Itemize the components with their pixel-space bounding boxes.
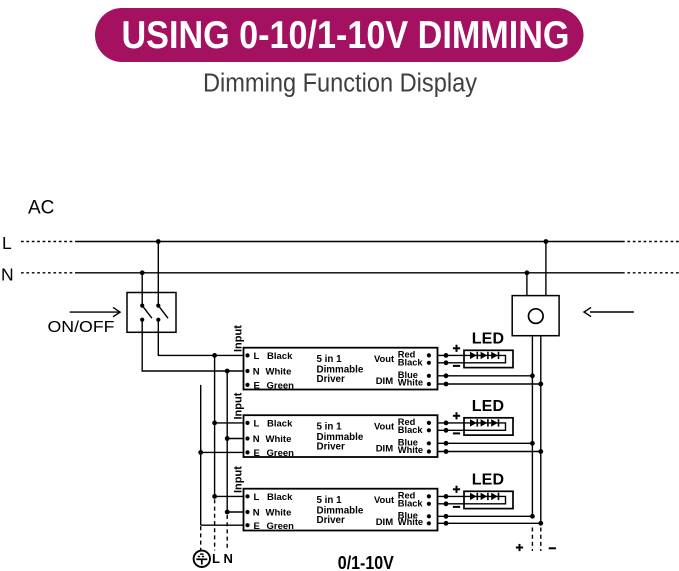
svg-text:Input: Input (233, 392, 245, 419)
svg-text:N: N (253, 434, 260, 445)
svg-text:L: L (2, 233, 12, 253)
svg-text:0/1-10V: 0/1-10V (338, 553, 394, 571)
svg-text:DIM: DIM (376, 444, 394, 455)
svg-text:L: L (212, 551, 220, 566)
svg-text:L: L (254, 419, 260, 430)
svg-text:Black: Black (267, 419, 293, 430)
svg-text:N: N (253, 508, 260, 519)
svg-text:E: E (254, 521, 260, 532)
svg-text:L: L (254, 492, 260, 503)
svg-text:Vout: Vout (374, 353, 394, 364)
svg-text:DIM: DIM (376, 376, 394, 387)
svg-text:LED: LED (472, 472, 505, 489)
svg-text:LED: LED (472, 398, 505, 415)
svg-text:N: N (224, 551, 233, 566)
svg-text:Black: Black (398, 358, 424, 368)
svg-text:E: E (254, 381, 260, 392)
svg-text:USING 0-10/1-10V DIMMING: USING 0-10/1-10V DIMMING (122, 14, 570, 57)
svg-text:Dimming Function Display: Dimming Function Display (203, 70, 477, 98)
svg-text:N: N (253, 367, 260, 378)
svg-text:Black: Black (398, 499, 424, 509)
svg-text:Black: Black (267, 351, 293, 362)
svg-text:LED: LED (472, 331, 505, 348)
svg-text:Vout: Vout (374, 420, 394, 431)
svg-text:White: White (398, 445, 423, 455)
svg-text:White: White (266, 434, 292, 445)
svg-text:DIM: DIM (376, 517, 394, 528)
svg-text:AC: AC (28, 198, 54, 219)
svg-text:Driver: Driver (317, 515, 346, 526)
svg-text:White: White (266, 508, 292, 519)
svg-text:White: White (398, 378, 423, 388)
svg-text:Vout: Vout (374, 494, 394, 505)
svg-text:Input: Input (233, 466, 245, 493)
svg-text:Input: Input (233, 325, 245, 352)
svg-text:E: E (254, 448, 260, 459)
svg-text:White: White (266, 367, 292, 378)
svg-text:Green: Green (267, 448, 295, 459)
svg-text:Driver: Driver (317, 442, 346, 453)
svg-text:Black: Black (267, 492, 293, 503)
svg-text:Green: Green (267, 521, 295, 532)
svg-text:Green: Green (267, 381, 295, 392)
svg-text:Black: Black (398, 425, 424, 435)
svg-text:ON/OFF: ON/OFF (48, 319, 115, 336)
svg-text:Driver: Driver (317, 374, 346, 385)
svg-text:White: White (398, 517, 423, 527)
svg-text:L: L (254, 351, 260, 362)
svg-text:N: N (1, 265, 14, 285)
